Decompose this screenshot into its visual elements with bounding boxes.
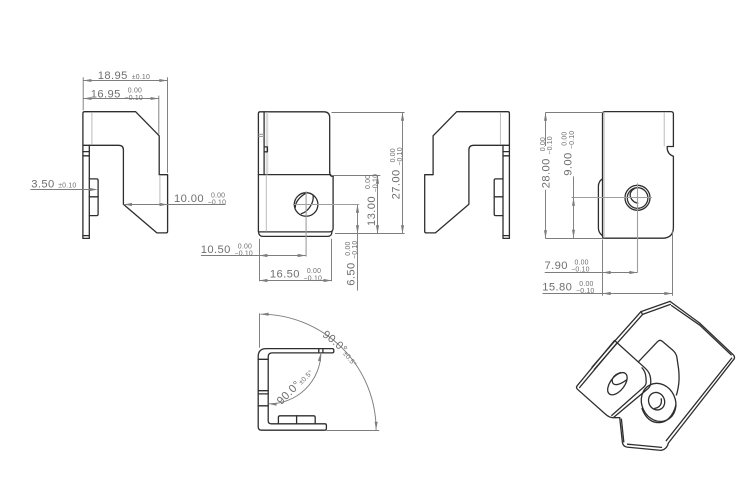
svg-text:−0.10: −0.10 — [372, 174, 379, 192]
svg-text:27.00: 27.00 — [390, 169, 402, 199]
svg-text:−0.10: −0.10 — [352, 241, 359, 259]
svg-text:−0.10: −0.10 — [571, 267, 589, 274]
svg-text:16.95: 16.95 — [91, 88, 121, 100]
svg-text:13.00: 13.00 — [366, 196, 378, 226]
svg-text:±0.10: ±0.10 — [132, 74, 150, 81]
svg-text:−0.10: −0.10 — [397, 147, 404, 165]
svg-text:−0.10: −0.10 — [235, 251, 253, 258]
svg-text:10.00: 10.00 — [174, 193, 204, 205]
svg-text:−0.10: −0.10 — [576, 288, 594, 295]
svg-text:−0.10: −0.10 — [304, 275, 322, 282]
svg-text:0.00: 0.00 — [128, 88, 142, 95]
svg-text:18.95: 18.95 — [98, 70, 128, 82]
svg-text:28.00: 28.00 — [541, 158, 553, 188]
svg-text:0.00: 0.00 — [575, 259, 589, 266]
svg-text:0.00: 0.00 — [238, 243, 252, 250]
svg-text:3.50: 3.50 — [31, 179, 54, 191]
svg-text:6.50: 6.50 — [346, 262, 358, 285]
svg-text:−0.10: −0.10 — [125, 95, 143, 102]
svg-text:±0.10: ±0.10 — [58, 182, 76, 189]
svg-text:9.00: 9.00 — [562, 152, 574, 175]
svg-text:0.00: 0.00 — [365, 175, 372, 189]
svg-text:0.00: 0.00 — [307, 268, 321, 275]
svg-text:−0.10: −0.10 — [547, 136, 554, 154]
svg-text:0.00: 0.00 — [390, 148, 397, 162]
svg-text:0.00: 0.00 — [345, 241, 352, 255]
svg-text:−0.10: −0.10 — [208, 200, 226, 207]
svg-text:0.00: 0.00 — [540, 137, 547, 151]
svg-text:16.50: 16.50 — [270, 269, 300, 281]
svg-text:0.00: 0.00 — [562, 132, 569, 146]
svg-text:7.90: 7.90 — [545, 260, 568, 272]
svg-text:10.50: 10.50 — [201, 244, 231, 256]
svg-text:0.00: 0.00 — [579, 281, 593, 288]
svg-text:−0.10: −0.10 — [569, 131, 576, 149]
svg-text:15.80: 15.80 — [542, 281, 572, 293]
svg-text:0.00: 0.00 — [211, 192, 225, 199]
